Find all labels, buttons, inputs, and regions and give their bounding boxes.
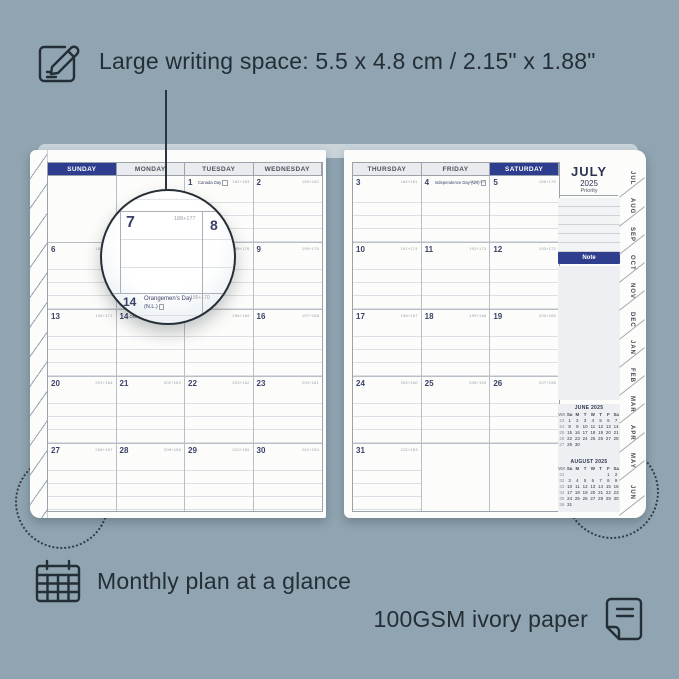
holiday-icon xyxy=(481,180,487,186)
day-code: 205+160 xyxy=(401,380,418,385)
calendar-grid-icon xyxy=(34,558,82,604)
sidebar: JULY 2025 Priority Note JUNE 2025WKSuMTW… xyxy=(558,162,620,510)
day-code: 203+162 xyxy=(232,380,249,385)
product-infographic: Large writing space: 5.5 x 4.8 cm / 2.15… xyxy=(0,0,679,679)
weekday-header: THURSDAY xyxy=(353,163,422,176)
day-number: 23 xyxy=(257,379,266,388)
day-cell: 15196+169 xyxy=(185,310,254,377)
mini-day xyxy=(597,502,605,508)
day-code: 209+156 xyxy=(164,447,181,452)
mini-day xyxy=(605,502,613,508)
day-code: 199+166 xyxy=(469,313,486,318)
writing-lines xyxy=(254,324,323,376)
day-cell: 23204+161 xyxy=(254,377,323,444)
day-code: 192+173 xyxy=(469,246,486,251)
weekday-header: SUNDAY xyxy=(48,163,117,176)
day-cell: 10191+174 xyxy=(353,243,422,310)
day-cell: 20201+164 xyxy=(48,377,117,444)
month-tab-mar: MAR xyxy=(620,390,644,418)
mini-calendar-august: AUGUST 2025WKSuMTWTFSa311232345678933101… xyxy=(558,458,620,512)
day-cell: 27208+157 xyxy=(48,444,117,511)
day-cell: 2183+182 xyxy=(254,176,323,243)
day-code: 206+159 xyxy=(469,380,486,385)
writing-lines xyxy=(48,391,116,443)
day-code: 197+168 xyxy=(302,313,319,318)
mag-day-14: 14 xyxy=(123,295,136,309)
day-number: 14 xyxy=(120,312,129,321)
mag-code-7: 188+177 xyxy=(174,216,196,222)
writing-lines xyxy=(117,324,185,376)
day-cell: 24205+160 xyxy=(353,377,422,444)
mini-day xyxy=(574,502,582,508)
day-cell: 18199+166 xyxy=(422,310,491,377)
month-tab-label: AUG xyxy=(629,198,635,214)
mag-line xyxy=(102,211,234,212)
day-number: 25 xyxy=(425,379,434,388)
month-tab-feb: FEB xyxy=(620,362,644,390)
writing-lines xyxy=(185,458,253,511)
day-number: 11 xyxy=(425,245,433,254)
day-code: 183+182 xyxy=(302,179,319,184)
mini-day: 31 xyxy=(566,502,574,508)
month-tab-label: APR xyxy=(629,425,635,441)
mini-day xyxy=(612,502,620,508)
day-number: 4 xyxy=(425,178,429,187)
month-tab-dec: DEC xyxy=(620,305,644,333)
mini-calendar-title: JUNE 2025 xyxy=(558,405,620,411)
month-tab-label: DEC xyxy=(629,312,635,328)
day-code: 190+175 xyxy=(302,246,319,251)
writing-lines xyxy=(422,257,490,309)
mini-calendar-title: AUGUST 2025 xyxy=(558,459,620,465)
day-code: 210+155 xyxy=(232,447,249,452)
day-cell: 25206+159 xyxy=(422,377,491,444)
day-cell xyxy=(422,444,491,511)
month-tab-apr: APR xyxy=(620,418,644,446)
day-cell: 5186+179 xyxy=(490,176,559,243)
writing-lines xyxy=(185,324,253,376)
day-number: 13 xyxy=(51,312,60,321)
weekday-header: WEDNESDAY xyxy=(254,163,323,176)
day-number: 27 xyxy=(51,446,60,455)
writing-lines xyxy=(254,391,323,443)
writing-lines xyxy=(490,324,559,376)
day-number: 12 xyxy=(493,245,502,254)
writing-lines xyxy=(254,190,323,242)
day-code: 198+167 xyxy=(401,313,418,318)
day-cell: 22203+162 xyxy=(185,377,254,444)
mini-calendar-june: JUNE 2025WKSuMTWTFSa23123456724891011121… xyxy=(558,404,620,458)
day-cell: 26207+158 xyxy=(490,377,559,444)
writing-lines xyxy=(490,190,559,242)
day-cell: 11192+173 xyxy=(422,243,491,310)
day-number: 26 xyxy=(493,379,502,388)
month-tab-jul: JUL xyxy=(620,164,644,192)
day-cell: 29210+155 xyxy=(185,444,254,511)
day-number: 2 xyxy=(257,178,261,187)
mag-line xyxy=(102,293,234,294)
day-number: 9 xyxy=(257,245,261,254)
mini-day xyxy=(597,442,605,448)
day-number: 5 xyxy=(493,178,497,187)
mini-day xyxy=(612,442,620,448)
day-cell: 9190+175 xyxy=(254,243,323,310)
holiday-label: Independence Day (US) xyxy=(435,180,486,186)
top-callout-text: Large writing space: 5.5 x 4.8 cm / 2.15… xyxy=(99,48,596,75)
day-number: 21 xyxy=(120,379,129,388)
bottom-callout-paper: 100GSM ivory paper xyxy=(373,596,645,642)
writing-lines xyxy=(48,324,116,376)
day-number: 10 xyxy=(356,245,365,254)
mag-holiday-sub: (N.L.) xyxy=(144,304,164,310)
pencil-note-icon xyxy=(34,36,84,86)
month-tab-label: MAY xyxy=(629,453,635,469)
mag-day-8: 8 xyxy=(210,217,218,233)
day-code: 200+165 xyxy=(539,313,556,318)
writing-lines xyxy=(422,190,490,242)
sidebar-year: 2025 xyxy=(558,179,620,188)
month-tab-strip: JULAUGSEPOCTNOVDECJANFEBMARAPRMAYJUN xyxy=(620,164,644,510)
day-number: 3 xyxy=(356,178,360,187)
writing-lines xyxy=(353,257,421,309)
weekday-header: MONDAY xyxy=(117,163,186,176)
day-code: 184+181 xyxy=(401,179,418,184)
planner-right-page: THURSDAYFRIDAYSATURDAY3184+1814185+180In… xyxy=(344,150,646,518)
writing-lines xyxy=(490,257,559,309)
day-code: 201+164 xyxy=(95,380,112,385)
writing-lines xyxy=(490,391,559,443)
month-tab-nov: NOV xyxy=(620,277,644,305)
paper-icon xyxy=(603,596,645,642)
day-cell: 17198+167 xyxy=(353,310,422,377)
mag-line xyxy=(102,199,234,200)
mini-calendar-row: 272930 xyxy=(558,442,620,448)
month-tab-may: MAY xyxy=(620,447,644,475)
mag-code-14: 195+170 xyxy=(190,295,210,301)
holiday-icon xyxy=(222,180,228,186)
day-code: 182+183 xyxy=(232,179,249,184)
day-number: 17 xyxy=(356,312,365,321)
writing-lines xyxy=(353,458,421,511)
day-number: 28 xyxy=(120,446,129,455)
mag-line xyxy=(202,211,203,317)
mini-day xyxy=(589,502,597,508)
writing-lines xyxy=(185,391,253,443)
right-page-grid: THURSDAYFRIDAYSATURDAY3184+1814185+180In… xyxy=(352,162,560,512)
month-tab-aug: AUG xyxy=(620,192,644,220)
writing-lines xyxy=(422,391,490,443)
month-tab-sep: SEP xyxy=(620,221,644,249)
day-code: 208+157 xyxy=(95,447,112,452)
page-edge-strip xyxy=(30,150,48,518)
top-callout: Large writing space: 5.5 x 4.8 cm / 2.15… xyxy=(34,36,596,86)
note-label: Note xyxy=(558,252,620,264)
day-code: 212+153 xyxy=(401,447,418,452)
month-tab-label: JUN xyxy=(629,485,635,500)
month-tab-jan: JAN xyxy=(620,334,644,362)
pointer-line xyxy=(165,90,167,191)
day-code: 186+179 xyxy=(539,179,556,184)
day-number: 20 xyxy=(51,379,60,388)
day-number: 31 xyxy=(356,446,365,455)
holiday-label: Canada Day xyxy=(198,180,228,186)
day-cell: 3184+181 xyxy=(353,176,422,243)
month-tab-label: JAN xyxy=(629,340,635,355)
day-number: 19 xyxy=(493,312,502,321)
writing-lines xyxy=(254,257,323,309)
mini-day xyxy=(581,502,589,508)
day-cell: 31212+153 xyxy=(353,444,422,511)
mag-line xyxy=(120,211,121,293)
day-cell xyxy=(490,444,559,511)
day-code: 204+161 xyxy=(302,380,319,385)
weekday-header: FRIDAY xyxy=(422,163,491,176)
mini-day xyxy=(605,442,613,448)
day-code: 196+169 xyxy=(232,313,249,318)
mini-day xyxy=(589,442,597,448)
writing-lines xyxy=(422,324,490,376)
day-number: 30 xyxy=(257,446,266,455)
day-number: 16 xyxy=(257,312,266,321)
writing-lines xyxy=(254,458,323,511)
bottom-callout-monthly-text: Monthly plan at a glance xyxy=(97,568,351,595)
mini-day xyxy=(581,442,589,448)
magnifier-circle: 7 188+177 8 14 Orangemen's Day (N.L.) 19… xyxy=(100,189,236,325)
mini-calendar-row: 3631 xyxy=(558,502,620,508)
month-tab-label: FEB xyxy=(629,368,635,383)
day-cell: 12193+172 xyxy=(490,243,559,310)
day-cell: 28209+156 xyxy=(117,444,186,511)
day-cell: 13194+171 xyxy=(48,310,117,377)
mag-line xyxy=(121,239,234,240)
mag-line xyxy=(112,315,234,316)
weekday-header: SATURDAY xyxy=(490,163,559,176)
day-code: 211+154 xyxy=(302,447,319,452)
note-area xyxy=(558,266,620,400)
day-cell: 21202+163 xyxy=(117,377,186,444)
month-tab-label: OCT xyxy=(629,255,635,271)
day-code: 207+158 xyxy=(539,380,556,385)
mini-week-number: 27 xyxy=(558,442,566,448)
writing-lines xyxy=(48,458,116,511)
priority-lines xyxy=(558,198,620,253)
month-tab-oct: OCT xyxy=(620,249,644,277)
day-number: 29 xyxy=(188,446,197,455)
day-cell: 19200+165 xyxy=(490,310,559,377)
day-cell: 30211+154 xyxy=(254,444,323,511)
month-tab-label: SEP xyxy=(629,227,635,242)
bottom-callout-monthly: Monthly plan at a glance xyxy=(34,558,351,604)
day-number: 18 xyxy=(425,312,434,321)
day-number: 22 xyxy=(188,379,197,388)
month-tab-label: JUL xyxy=(629,171,635,185)
writing-lines xyxy=(353,190,421,242)
writing-lines xyxy=(117,391,185,443)
mag-day-7: 7 xyxy=(126,214,135,232)
day-code: 193+172 xyxy=(539,246,556,251)
bottom-callout-paper-text: 100GSM ivory paper xyxy=(373,606,588,633)
month-tab-jun: JUN xyxy=(620,475,644,510)
mag-holiday: Orangemen's Day xyxy=(144,296,192,302)
day-code: 191+174 xyxy=(401,246,418,251)
weekday-header: TUESDAY xyxy=(185,163,254,176)
priority-label: Priority xyxy=(560,188,618,196)
day-number: 1 xyxy=(188,178,192,187)
day-number: 6 xyxy=(51,245,55,254)
writing-lines xyxy=(353,391,421,443)
day-number: 24 xyxy=(356,379,365,388)
day-cell: 16197+168 xyxy=(254,310,323,377)
writing-lines xyxy=(117,458,185,511)
mini-week-number: 36 xyxy=(558,502,566,508)
day-cell: 4185+180Independence Day (US) xyxy=(422,176,491,243)
mini-day: 30 xyxy=(574,442,582,448)
day-code: 202+163 xyxy=(164,380,181,385)
day-code: 194+171 xyxy=(95,313,112,318)
sidebar-month-title: JULY xyxy=(558,164,620,179)
writing-lines xyxy=(353,324,421,376)
mag-line xyxy=(121,267,234,268)
mini-day: 29 xyxy=(566,442,574,448)
